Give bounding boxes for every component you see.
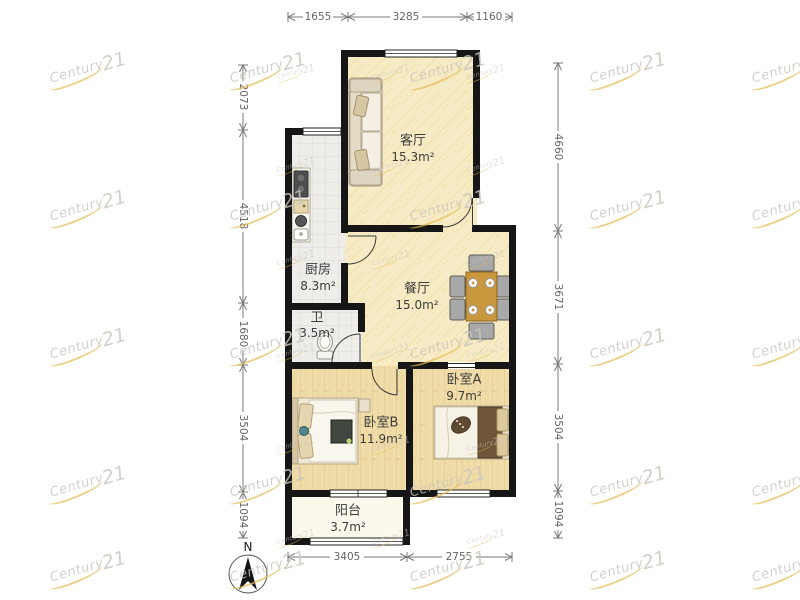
dining-chair <box>450 276 465 297</box>
room-label-bedroom-b: 卧室B <box>364 415 399 431</box>
cutting-board <box>294 200 308 213</box>
kitchen-counter <box>292 168 310 242</box>
dining-chair <box>469 255 494 271</box>
dim-left-5: 1094 <box>237 502 249 529</box>
dim-top-2: 3285 <box>393 11 420 23</box>
nightstand <box>359 399 370 412</box>
floorplan-page: { "watermark": { "text_main": "Century",… <box>0 0 800 600</box>
dining-chair <box>469 323 494 339</box>
room-label-living: 客厅 <box>400 133 426 149</box>
window-kitchen <box>303 128 341 135</box>
room-area-bedroom-a: 9.7m² <box>446 389 482 403</box>
dim-left-2: 4518 <box>237 203 249 230</box>
room-area-living: 15.3m² <box>391 150 434 164</box>
room-area-bath: 3.5m² <box>299 326 335 340</box>
bed-b <box>292 398 370 464</box>
compass: N <box>229 540 267 593</box>
dining-chair <box>450 299 465 320</box>
balcony-sliding-door <box>330 490 387 497</box>
dim-top-1: 1655 <box>305 11 332 23</box>
room-area-balcony: 3.7m² <box>330 520 366 534</box>
window-balcony <box>310 538 403 545</box>
compass-north-label: N <box>244 540 253 554</box>
room-area-dining: 15.0m² <box>395 298 438 312</box>
dim-left-4: 3504 <box>237 415 249 442</box>
bed-a <box>434 406 509 459</box>
dim-right-4: 1094 <box>552 501 564 528</box>
room-label-bedroom-a: 卧室A <box>447 372 482 388</box>
dim-bottom-2: 2755 <box>446 551 473 563</box>
room-label-balcony: 阳台 <box>335 504 361 519</box>
dim-top-3: 1160 <box>476 11 503 23</box>
dim-right-2: 3671 <box>552 284 564 311</box>
window-living <box>385 50 457 57</box>
window-bedroom-a <box>437 490 490 497</box>
compass-needle <box>239 557 257 590</box>
floor-plan: 客厅 15.3m² 厨房 8.3m² 餐厅 15.0m² 卫 3.5m² 卧室A… <box>0 0 800 600</box>
dim-bottom-1: 3405 <box>334 551 361 563</box>
opening-bedroom-a <box>448 362 475 369</box>
room-label-kitchen: 厨房 <box>305 262 331 278</box>
dim-left-1: 2073 <box>237 84 249 111</box>
dim-left-3: 1680 <box>237 321 249 348</box>
pot <box>296 216 307 227</box>
room-area-kitchen: 8.3m² <box>300 279 336 293</box>
room-label-bath: 卫 <box>310 311 323 326</box>
dim-right-3: 3504 <box>552 414 564 441</box>
sofa <box>349 78 382 186</box>
dim-right-1: 4660 <box>552 134 564 161</box>
room-label-dining: 餐厅 <box>404 281 430 297</box>
room-area-bedroom-b: 11.9m² <box>359 432 402 446</box>
